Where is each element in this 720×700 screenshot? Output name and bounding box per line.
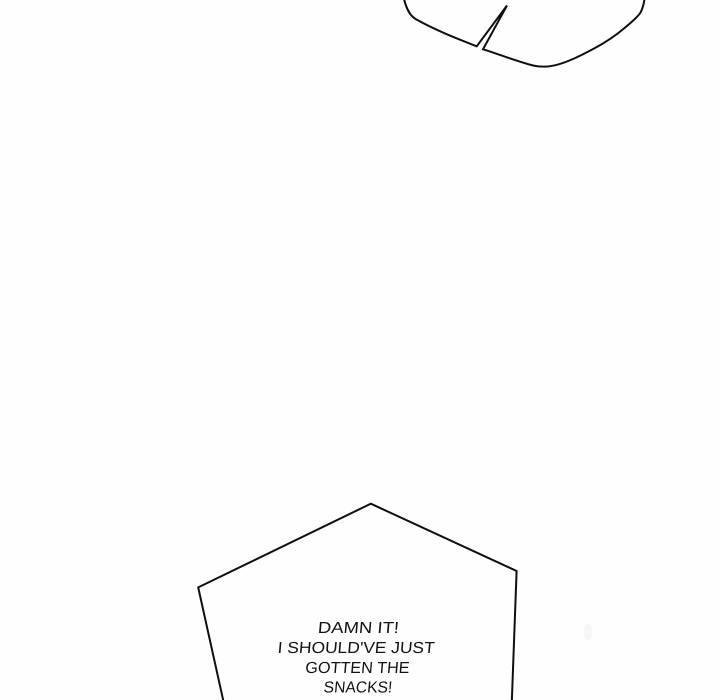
svg-text:GOTTEN THE: GOTTEN THE [305, 659, 411, 677]
svg-text:I SHOULD'VE JUST: I SHOULD'VE JUST [277, 639, 436, 657]
svg-text:SNACKS!: SNACKS! [323, 679, 393, 697]
svg-text:DAMN IT!: DAMN IT! [317, 619, 400, 637]
